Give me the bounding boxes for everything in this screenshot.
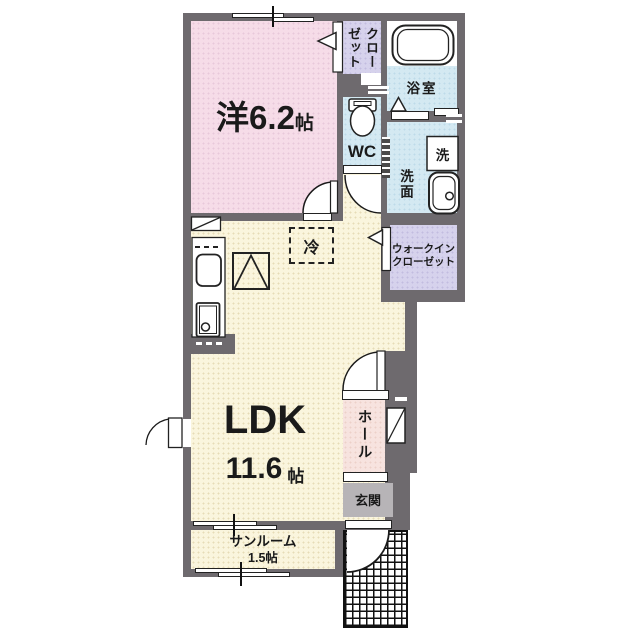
ldk-label: LDK <box>200 398 330 442</box>
wc-label: WC <box>343 141 381 163</box>
washroom-label: 洗面 <box>392 160 418 208</box>
ldk-side-door-leaf <box>169 418 183 448</box>
wc-threshold <box>343 165 382 174</box>
western-room-door-leaf <box>331 181 338 213</box>
hall-bottom-threshold <box>343 472 388 482</box>
ldk-side-door-arc <box>146 419 169 445</box>
bath-direction-icon <box>391 98 406 112</box>
hall-door-leaf <box>377 351 385 391</box>
western-room-label: 洋6.2帖 <box>195 94 335 136</box>
kitchen-stove-knob <box>202 323 210 331</box>
washer-label: 洗 <box>427 137 458 170</box>
closet-label: クローゼット <box>342 23 382 73</box>
bottom-window-tick <box>240 562 242 586</box>
kitchen-sink-icon <box>197 255 222 287</box>
toilet-bowl-icon <box>351 106 375 136</box>
bath-folding-door <box>391 111 429 120</box>
closet-direction-icon <box>318 33 336 50</box>
closet-notch <box>361 73 381 85</box>
hall-vent-dash <box>395 397 407 401</box>
refrigerator-label: 冷 <box>303 234 319 258</box>
washroom-window-dash-1 <box>446 114 462 117</box>
hall-label: ホール <box>352 404 376 466</box>
kitchen-range-triangle <box>235 256 268 289</box>
top-window-bar-2 <box>272 17 314 22</box>
closet-vent-dash-2 <box>368 91 389 94</box>
sunroom-size-label: 1.5帖 <box>198 549 328 564</box>
sunroom-label: サンルーム <box>198 532 328 548</box>
entrance-step <box>345 520 392 529</box>
top-window-tick <box>272 6 274 27</box>
walk-in-closet-label: ウォークイン クローゼット <box>390 241 457 271</box>
western-room-threshold <box>303 213 332 221</box>
floor-plan: 冷 洋6.2帖 クローゼット 浴室 WC 洗面 洗 ウォークイン クローゼット … <box>0 0 640 640</box>
ldk-size-label: 11.6帖 <box>200 452 330 486</box>
vanity-drain <box>446 192 454 200</box>
kitchen-range-box <box>233 253 269 289</box>
hall-top-threshold <box>342 390 389 400</box>
bathroom-label: 浴室 <box>387 78 457 95</box>
entrance-label: 玄関 <box>343 489 393 509</box>
refrigerator-box: 冷 <box>289 227 334 264</box>
washroom-window-dash-2 <box>446 120 462 123</box>
wic-direction-icon <box>369 230 383 245</box>
bottom-window-bar-2 <box>218 572 290 577</box>
closet-vent-dash-1 <box>368 86 389 89</box>
ldk-side-door-gap <box>182 419 191 447</box>
